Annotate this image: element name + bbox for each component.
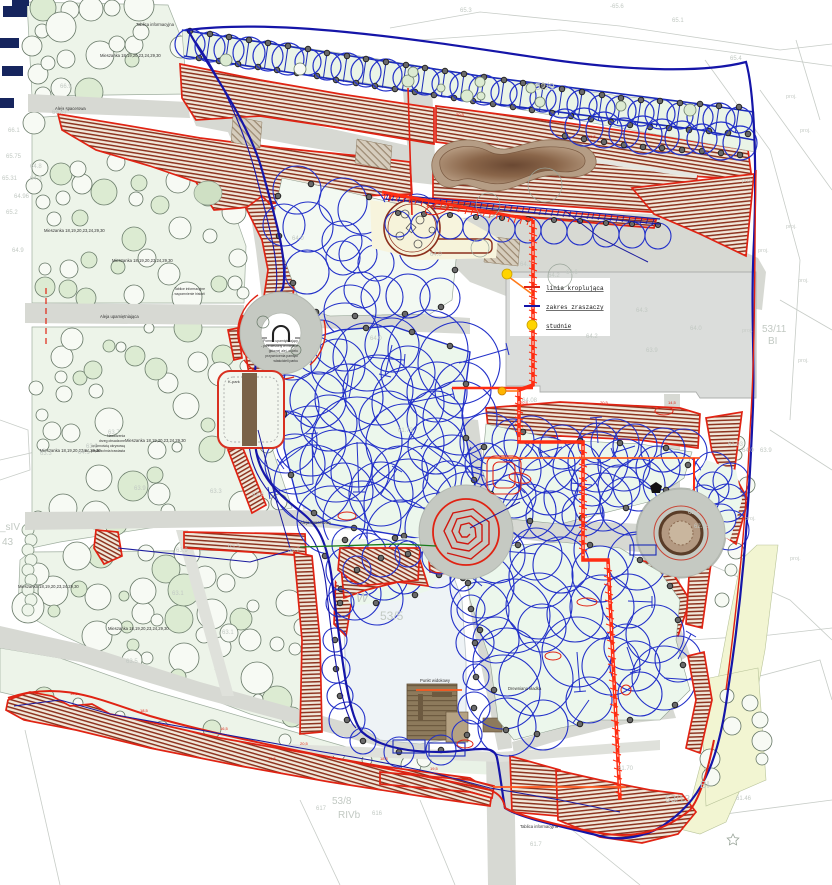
svg-text:Mieszanka 18,19,20,23,24,29,30: Mieszanka 18,19,20,23,24,29,30 bbox=[44, 228, 105, 233]
svg-text:64.6: 64.6 bbox=[566, 270, 578, 276]
svg-text:RIVb: RIVb bbox=[338, 810, 361, 821]
svg-text:_sIV: _sIV bbox=[0, 522, 20, 533]
svg-text:65.31: 65.31 bbox=[2, 176, 18, 182]
svg-text:Drewniana kładka: Drewniana kładka bbox=[508, 686, 542, 691]
svg-text:proj.: proj. bbox=[790, 556, 801, 562]
svg-text:proj.: proj. bbox=[786, 94, 797, 100]
svg-text:66.1: 66.1 bbox=[8, 128, 20, 134]
svg-text:43: 43 bbox=[2, 537, 14, 548]
svg-text:64.0: 64.0 bbox=[292, 236, 304, 242]
svg-text:64.7: 64.7 bbox=[520, 262, 532, 268]
svg-text:63.1: 63.1 bbox=[172, 591, 184, 597]
svg-text:63.3: 63.3 bbox=[210, 489, 222, 495]
svg-text:65.3: 65.3 bbox=[460, 8, 472, 14]
svg-text:65.4: 65.4 bbox=[730, 56, 742, 62]
svg-text:64.0: 64.0 bbox=[690, 326, 702, 332]
svg-text:66.9: 66.9 bbox=[60, 84, 72, 90]
svg-text:studnie: studnie bbox=[546, 323, 572, 330]
svg-text:20,5: 20,5 bbox=[600, 400, 609, 405]
svg-text:64.2: 64.2 bbox=[548, 273, 560, 279]
svg-text:- wspomnienie historii: - wspomnienie historii bbox=[172, 292, 205, 296]
svg-text:63.8: 63.8 bbox=[252, 492, 264, 498]
svg-text:18,5: 18,5 bbox=[380, 756, 389, 761]
svg-text:drzeg obsadzone: drzeg obsadzone bbox=[99, 439, 125, 443]
svg-text:proj.: proj. bbox=[798, 358, 809, 364]
svg-text:63.1: 63.1 bbox=[222, 630, 234, 636]
svg-text:62.76: 62.76 bbox=[694, 524, 710, 530]
svg-text:Tablice informacyjne: Tablice informacyjne bbox=[174, 287, 205, 291]
svg-text:BI: BI bbox=[768, 336, 777, 347]
svg-text:64.3: 64.3 bbox=[636, 308, 648, 314]
svg-text:64.96: 64.96 bbox=[14, 194, 30, 200]
svg-text:Tablica informacyjna: Tablica informacyjna bbox=[520, 824, 559, 829]
svg-text:65.75: 65.75 bbox=[6, 154, 22, 160]
svg-text:właścicieli parku: właścicieli parku bbox=[274, 359, 299, 363]
svg-text:61.46: 61.46 bbox=[736, 796, 752, 802]
svg-text:53/11: 53/11 bbox=[762, 324, 787, 335]
svg-text:64.9: 64.9 bbox=[12, 248, 24, 254]
svg-text:proj.: proj. bbox=[742, 178, 753, 184]
svg-text:proj.: proj. bbox=[758, 248, 769, 254]
svg-text:64.0: 64.0 bbox=[430, 252, 442, 258]
svg-text:63.9: 63.9 bbox=[646, 348, 658, 354]
svg-text:Mieszanka 18,19,20,23,24,29,30: Mieszanka 18,19,20,23,24,29,30 bbox=[125, 438, 186, 443]
svg-text:61.70: 61.70 bbox=[618, 766, 634, 772]
svg-text:18,5: 18,5 bbox=[140, 708, 149, 713]
svg-text:14,5: 14,5 bbox=[668, 400, 677, 405]
svg-text:616: 616 bbox=[372, 811, 383, 817]
svg-text:53/13: 53/13 bbox=[665, 794, 690, 805]
svg-text:64.1: 64.1 bbox=[78, 450, 90, 456]
svg-text:64.0: 64.0 bbox=[742, 448, 754, 454]
svg-text:Aleja upamiętniająca: Aleja upamiętniająca bbox=[100, 314, 139, 319]
svg-text:19,5: 19,5 bbox=[430, 766, 439, 771]
svg-text:Pomnik upamiętniający: Pomnik upamiętniający bbox=[263, 339, 298, 343]
svg-text:64.0: 64.0 bbox=[370, 336, 382, 342]
svg-text:przywrócenia pamięci: przywrócenia pamięci bbox=[265, 354, 298, 358]
svg-text:38.2: 38.2 bbox=[288, 548, 300, 554]
svg-text:63.9: 63.9 bbox=[134, 486, 146, 492]
svg-text:Mieszanka 18,19,20,23,24,29,30: Mieszanka 18,19,20,23,24,29,30 bbox=[108, 626, 169, 631]
svg-text:63.5: 63.5 bbox=[228, 544, 240, 550]
svg-text:proj.: proj. bbox=[742, 328, 753, 334]
svg-text:61.73: 61.73 bbox=[398, 428, 414, 434]
svg-text:Punkt widokowy: Punkt widokowy bbox=[420, 678, 451, 683]
svg-text:617: 617 bbox=[316, 806, 327, 812]
svg-text:BI: BI bbox=[700, 780, 709, 791]
svg-text:61.7: 61.7 bbox=[530, 842, 542, 848]
svg-text:linia kroplująca: linia kroplująca bbox=[546, 285, 604, 292]
svg-text:64.8: 64.8 bbox=[30, 164, 42, 170]
svg-text:64.2: 64.2 bbox=[586, 334, 598, 340]
svg-text:16,5: 16,5 bbox=[220, 726, 229, 731]
svg-text:Mieszanka 18,19,20,23,24,29,30: Mieszanka 18,19,20,23,24,29,30 bbox=[112, 258, 173, 263]
svg-text:16,5: 16,5 bbox=[70, 691, 79, 696]
svg-text:20,5: 20,5 bbox=[520, 400, 529, 405]
svg-text:proj.: proj. bbox=[798, 278, 809, 284]
svg-text:15,5: 15,5 bbox=[588, 134, 597, 139]
svg-text:65.1: 65.1 bbox=[672, 18, 684, 24]
svg-text:Tablica informacyjna: Tablica informacyjna bbox=[136, 22, 175, 27]
svg-text:52/9: 52/9 bbox=[535, 82, 555, 93]
svg-text:63.5: 63.5 bbox=[126, 659, 138, 665]
svg-text:proj.: proj. bbox=[786, 224, 797, 230]
svg-text:63.3: 63.3 bbox=[40, 451, 52, 457]
svg-text:53/5: 53/5 bbox=[380, 609, 404, 623]
svg-text:głównej alei, w celu: głównej alei, w celu bbox=[269, 349, 298, 353]
svg-text:zakres zraszaczy: zakres zraszaczy bbox=[546, 304, 604, 311]
svg-text:63.9: 63.9 bbox=[176, 548, 188, 554]
svg-text:-65.6: -65.6 bbox=[610, 4, 624, 10]
svg-text:proj.: proj. bbox=[800, 128, 811, 134]
svg-text:Mieszanka 18,19,20,23,24,29,30: Mieszanka 18,19,20,23,24,29,30 bbox=[18, 584, 79, 589]
svg-text:63.9: 63.9 bbox=[760, 448, 772, 454]
svg-text:62.8: 62.8 bbox=[688, 510, 700, 516]
svg-text:K-park: K-park bbox=[228, 379, 240, 384]
svg-text:Mieszanka 18,19,20,23,24,29,30: Mieszanka 18,19,20,23,24,29,30 bbox=[100, 53, 161, 58]
svg-text:proj.: proj. bbox=[745, 516, 756, 522]
svg-text:20,5: 20,5 bbox=[456, 112, 465, 117]
svg-text:63.7: 63.7 bbox=[108, 430, 120, 436]
svg-text:65.2: 65.2 bbox=[6, 210, 18, 216]
svg-text:66.57: 66.57 bbox=[52, 110, 68, 116]
svg-text:15,5: 15,5 bbox=[268, 756, 277, 761]
svg-text:20,5: 20,5 bbox=[300, 741, 309, 746]
svg-text:Aleja spacerowa: Aleja spacerowa bbox=[300, 520, 331, 525]
svg-text:53/8: 53/8 bbox=[332, 796, 352, 807]
svg-text:- przeniesiony w miejsce: - przeniesiony w miejsce bbox=[261, 344, 298, 348]
svg-text:64.3: 64.3 bbox=[30, 176, 42, 182]
svg-text:W: W bbox=[356, 590, 370, 605]
